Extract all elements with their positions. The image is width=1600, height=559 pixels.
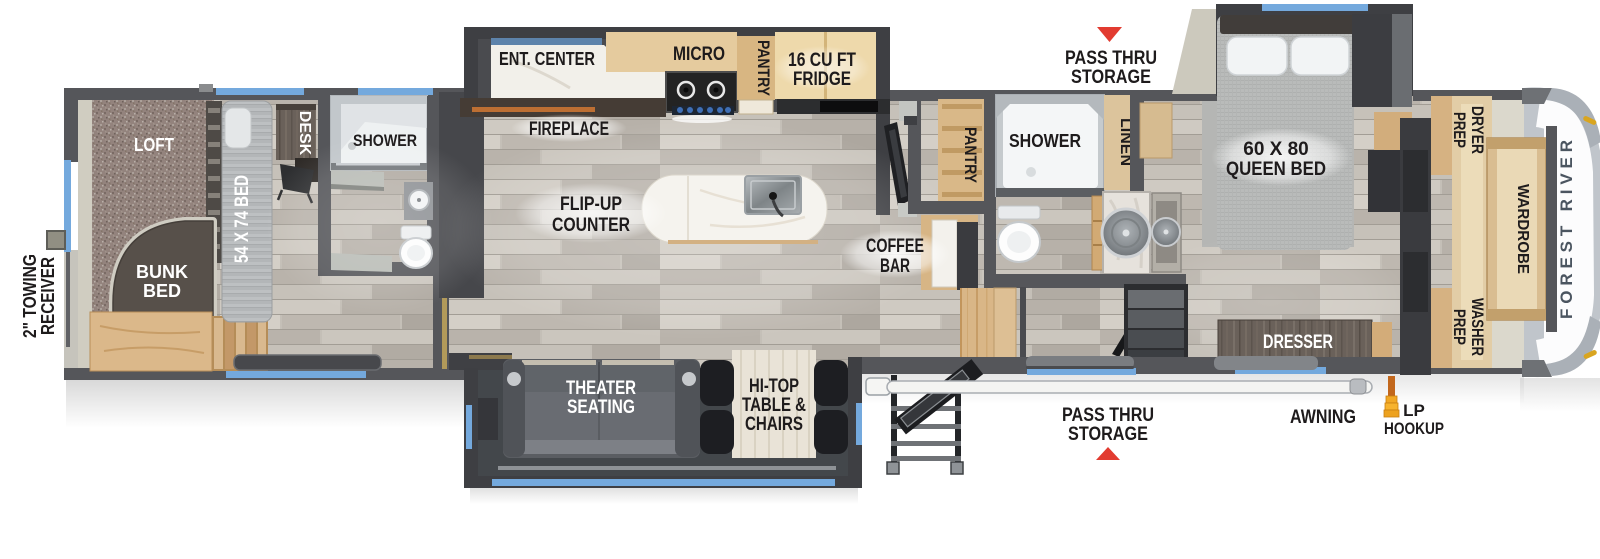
svg-text:RECEIVER: RECEIVER <box>38 257 58 335</box>
svg-text:FOREST RIVER: FOREST RIVER <box>1557 137 1576 319</box>
svg-text:FLIP-UP: FLIP-UP <box>560 194 622 215</box>
svg-text:BUNK: BUNK <box>136 262 188 282</box>
svg-text:CHAIRS: CHAIRS <box>745 414 803 435</box>
svg-text:PREP: PREP <box>1450 309 1469 345</box>
svg-text:BAR: BAR <box>880 256 910 277</box>
svg-text:DRESSER: DRESSER <box>1263 332 1333 353</box>
svg-text:LP: LP <box>1403 401 1425 420</box>
svg-text:STORAGE: STORAGE <box>1068 424 1148 445</box>
svg-text:QUEEN BED: QUEEN BED <box>1226 159 1326 180</box>
svg-text:PANTRY: PANTRY <box>754 40 773 97</box>
svg-text:WARDROBE: WARDROBE <box>1514 184 1531 274</box>
svg-text:ENT. CENTER: ENT. CENTER <box>499 49 595 69</box>
svg-text:BED: BED <box>143 281 181 301</box>
svg-text:SHOWER: SHOWER <box>1009 131 1081 151</box>
svg-text:AWNING: AWNING <box>1290 407 1356 428</box>
svg-text:PREP: PREP <box>1450 112 1469 148</box>
svg-text:STORAGE: STORAGE <box>1071 67 1151 88</box>
svg-text:FRIDGE: FRIDGE <box>793 69 851 90</box>
svg-text:TABLE &: TABLE & <box>742 395 806 416</box>
svg-text:54 X 74 BED: 54 X 74 BED <box>232 175 253 263</box>
svg-text:DRYER: DRYER <box>1468 106 1487 154</box>
svg-text:THEATER: THEATER <box>566 378 636 399</box>
svg-text:60 X 80: 60 X 80 <box>1243 139 1309 160</box>
svg-text:PANTRY: PANTRY <box>961 127 980 184</box>
svg-text:HOOKUP: HOOKUP <box>1384 419 1444 438</box>
svg-text:MICRO: MICRO <box>673 44 725 65</box>
svg-text:16 CU FT: 16 CU FT <box>788 50 856 71</box>
svg-text:COFFEE: COFFEE <box>866 236 924 257</box>
svg-text:LOFT: LOFT <box>134 135 174 155</box>
svg-text:2" TOWING: 2" TOWING <box>20 254 40 338</box>
svg-text:WASHER: WASHER <box>1468 298 1487 356</box>
svg-text:PASS THRU: PASS THRU <box>1062 405 1154 426</box>
svg-text:HI-TOP: HI-TOP <box>749 376 799 397</box>
svg-text:DESK: DESK <box>296 111 313 156</box>
svg-text:PASS THRU: PASS THRU <box>1065 48 1157 69</box>
svg-text:COUNTER: COUNTER <box>552 215 630 236</box>
svg-text:SEATING: SEATING <box>567 397 635 418</box>
